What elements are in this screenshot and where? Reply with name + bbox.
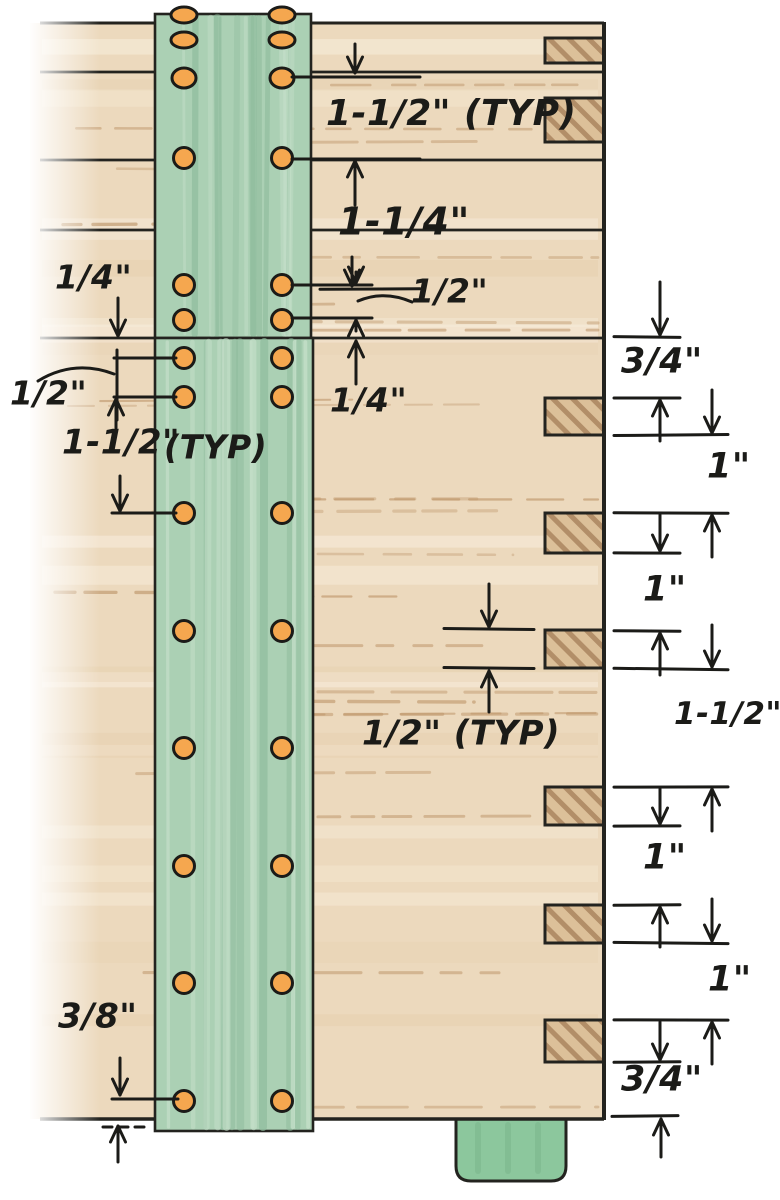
dim-tick [614,668,728,669]
screw-dot [174,275,195,296]
dim-label-top_half: 1/2" [411,272,488,311]
edge-notch [545,630,604,668]
dim-label-top_spacing: 1-1/2" (TYP) [326,93,576,134]
cleat-streak [298,342,299,1127]
wood-light-band [42,39,598,55]
wood-light-band [42,825,598,838]
dim-label-right_2: 1" [707,446,751,486]
dim-label-top_second: 1-1/4" [338,200,470,244]
dim-label-right_6: 1" [708,959,752,999]
dim-label-right_4: 1-1/2" [674,696,780,732]
screw-dot [174,973,195,994]
dim-label-left_spacing: 1-1/2" [62,423,180,463]
dim-label-right_7: 3/4" [621,1059,703,1099]
left-margin [0,0,30,1200]
wood-light-band [42,536,598,548]
screw-dot [171,7,197,23]
edge-notch [545,905,604,943]
wood-shade-band [42,942,598,963]
screw-dot [174,738,195,759]
screw-dot [174,621,195,642]
screw-dot [272,148,293,169]
cleat-joinery-diagram: 1-1/2" (TYP)1-1/4"1/2"1/4"1/4"1/2"1-1/2"… [0,0,780,1200]
dim-tick [444,629,534,630]
screw-dot [270,68,294,88]
dim-tick [612,1116,678,1117]
cleat-layer [155,14,313,1131]
edge-notch [545,513,604,553]
screw-dot [172,68,196,88]
cleat-streak [246,18,247,334]
screw-dot [272,503,293,524]
screw-dot [174,856,195,877]
diagram-stage: 1-1/2" (TYP)1-1/4"1/2"1/4"1/4"1/2"1-1/2"… [0,0,780,1200]
edge-notch [545,38,604,63]
cleat-streak [211,18,212,334]
wood-light-band [42,866,598,882]
dim-label-left_quarter: 1/4" [55,258,132,297]
edge-notch [545,787,604,825]
dim-label-left_half: 1/2" [10,374,87,413]
cleat-streak [215,18,217,334]
screw-dot [272,621,293,642]
screw-dot [269,7,295,23]
screw-dot [174,310,195,331]
dim-tick [614,434,728,435]
edge-notch [545,398,604,435]
dim-label-right_1: 3/4" [621,341,703,381]
wood-light-band [42,566,598,585]
dim-tick [614,942,728,943]
screw-dot [272,348,293,369]
wood-shade-band [42,338,598,354]
screw-dot [272,738,293,759]
dim-label-left_bottom: 3/8" [58,997,137,1037]
screw-dot [174,148,195,169]
edge-notch [545,1020,604,1062]
dim-tick [614,513,728,514]
cleat-streak [251,18,253,334]
cleat-streak [265,18,268,334]
dim-tick [444,668,534,669]
dim-label-left_typ: (TYP) [164,428,267,467]
dim-label-mid_quarter: 1/4" [330,381,407,420]
tenon-layer [456,1119,566,1181]
dim-label-notch_typ: 1/2" (TYP) [362,714,560,754]
screw-dot [174,1091,195,1112]
dim-tick [614,905,680,906]
screw-dot [171,32,197,48]
screw-dot [272,856,293,877]
screw-dot [272,310,293,331]
screw-dot [272,1091,293,1112]
screw-dot [272,387,293,408]
dim-tick [614,337,680,338]
screw-dot [272,973,293,994]
screw-dot [269,32,295,48]
cleat-streak [293,342,295,1127]
cleat-streak [235,18,237,334]
screw-dot [272,275,293,296]
dim-label-right_3: 1" [643,569,687,609]
wood-light-band [42,893,598,906]
dim-label-right_5: 1" [643,837,687,877]
